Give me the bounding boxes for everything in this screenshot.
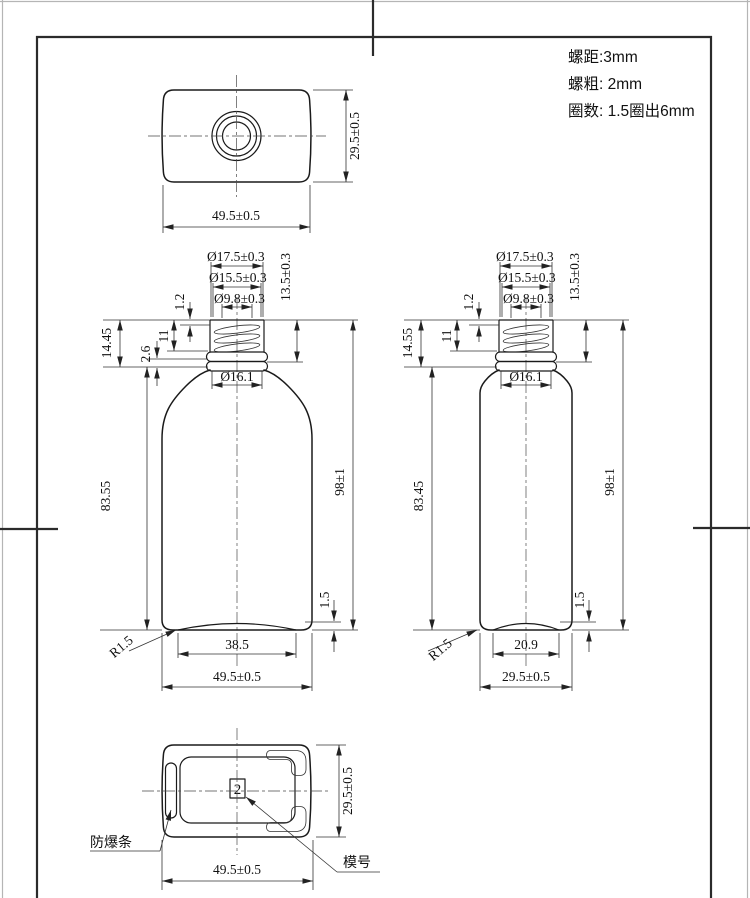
dim-round-base-pushup: 1.5: [572, 591, 587, 608]
dim-round-neck-od: Ø15.5±0.3: [498, 270, 556, 285]
dim-oval-overall-width: 49.5±0.5: [213, 669, 261, 684]
bottle-oval-view: Ø17.5±0.3 Ø15.5±0.3 Ø9.8±0.3 13.5±0.3 1.…: [98, 249, 358, 691]
bottle-round-view: Ø17.5±0.3 Ø15.5±0.3 Ø9.8±0.3 13.5±0.3 1.…: [400, 249, 629, 691]
antiburst-label: 防爆条: [90, 834, 132, 850]
dim-oval-overall-height: 98±1: [332, 468, 347, 496]
drawing-sheet: 螺距:3mm 螺粗: 2mm 圈数: 1.5圈出6mm 29.5±0.5 49.…: [0, 0, 750, 898]
mold-number-text: 2: [234, 782, 242, 798]
dim-round-thread-section: 11: [439, 330, 454, 343]
dim-captop-width: 49.5±0.5: [212, 208, 260, 223]
note-line-3: 圈数: 1.5圈出6mm: [568, 102, 695, 120]
dim-oval-thread-od: Ø17.5±0.3: [207, 249, 265, 264]
dim-round-neck-height: 13.5±0.3: [567, 253, 582, 301]
dim-capbottom-height: 29.5±0.5: [340, 767, 355, 815]
dim-round-base-radius: R1.5: [425, 635, 455, 663]
dim-oval-neck-height: 13.5±0.3: [278, 253, 293, 301]
antiburst-hook-top: [267, 751, 307, 776]
dim-oval-base-flat: 38.5: [225, 637, 249, 652]
mold-label: 模号: [343, 854, 371, 870]
dim-round-thread-start: 1.2: [461, 294, 476, 311]
dim-oval-base-radius: R1.5: [106, 632, 136, 660]
cap-bottom-view: 2 29.5±0.5 49.5±0.5 防爆条 模号: [90, 728, 380, 890]
dim-round-thread-od: Ø17.5±0.3: [496, 249, 554, 264]
dim-oval-opening-id: Ø9.8±0.3: [214, 291, 265, 306]
cap-top-view: 29.5±0.5 49.5±0.5: [148, 75, 362, 233]
dim-oval-finish-height: 14.45: [99, 328, 114, 359]
dim-round-body-height: 83.45: [411, 481, 426, 512]
dim-round-neck-base-od: Ø16.1: [509, 369, 542, 384]
dim-round-base-flat: 20.9: [514, 637, 538, 652]
dim-oval-thread-section: 11: [156, 330, 171, 343]
antiburst-strip: [166, 763, 177, 818]
dim-captop-height: 29.5±0.5: [347, 112, 362, 160]
dim-capbottom-width: 49.5±0.5: [213, 862, 261, 877]
dim-round-overall-width: 29.5±0.5: [502, 669, 550, 684]
dim-round-overall-height: 98±1: [602, 468, 617, 496]
dim-oval-base-pushup: 1.5: [317, 591, 332, 608]
note-line-1: 螺距:3mm: [568, 48, 638, 66]
dim-oval-neck-base-od: Ø16.1: [220, 369, 253, 384]
dim-oval-thread-start: 1.2: [172, 294, 187, 311]
note-line-2: 螺粗: 2mm: [568, 75, 642, 93]
dim-oval-neck-od: Ø15.5±0.3: [209, 270, 267, 285]
notes-block: 螺距:3mm 螺粗: 2mm 圈数: 1.5圈出6mm: [568, 48, 695, 120]
dim-round-finish-height: 14.55: [400, 328, 415, 359]
dim-oval-ring-section: 2.6: [138, 345, 153, 362]
dim-oval-body-height: 83.55: [98, 481, 113, 512]
dim-round-opening-id: Ø9.8±0.3: [503, 291, 554, 306]
sheet-frame: [0, 0, 750, 898]
